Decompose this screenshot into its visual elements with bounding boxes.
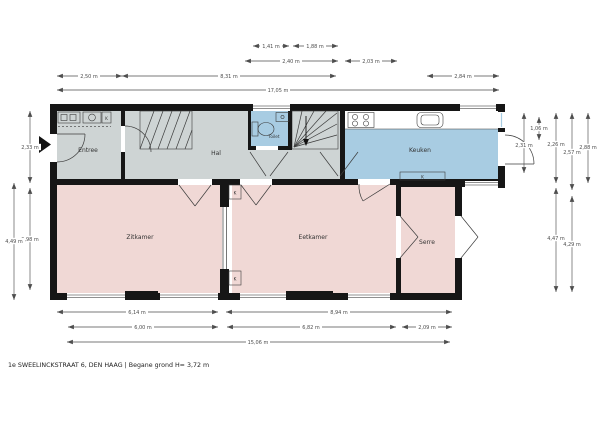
- entree-room: [57, 111, 121, 179]
- serre-label: Serre: [419, 239, 435, 246]
- dim-label: 1,06 m: [530, 126, 548, 132]
- keuken-eetkamer-opening: [358, 179, 390, 185]
- serre-right-door-leaf2: [461, 237, 478, 258]
- dim-label: 2,50 m: [80, 74, 98, 80]
- dim-label: 2,40 m: [282, 59, 300, 65]
- dim-label: 2,84 m: [454, 74, 472, 80]
- dim-label: 17,05 m: [268, 88, 289, 94]
- dim-label: 6,82 m: [302, 325, 320, 331]
- kitchen-cabinet-label: K: [421, 174, 424, 179]
- floorplan-drawing: K: [0, 0, 600, 424]
- toilet-window-opening: [253, 104, 290, 111]
- entree-label: Entree: [78, 147, 98, 154]
- hal-room: [125, 111, 340, 179]
- ensuite-cabinet-bottom-label: K: [234, 277, 237, 282]
- eetkamer-label: Eetkamer: [299, 234, 328, 241]
- serre-left-opening: [396, 216, 401, 258]
- dimensions-bottom: 6,14 m 8,94 m 6,00 m 6,82 m 2,09 m 15,06…: [57, 309, 452, 346]
- kitchen-exterior-door-arc-icon: [505, 135, 534, 164]
- serre-right-door-leaf1: [461, 216, 478, 237]
- keuken-label: Keuken: [409, 147, 431, 154]
- dim-label: 6,00 m: [134, 325, 152, 331]
- dim-label: 4,49 m: [5, 239, 23, 245]
- wall-bump-left: [125, 291, 158, 300]
- front-door-opening: [50, 134, 57, 162]
- dim-label: 15,06 m: [248, 340, 269, 346]
- wall-hal-keuken: [340, 111, 345, 179]
- partition-bottom-block: [220, 269, 229, 293]
- kitchen-counter: [345, 111, 498, 129]
- serre-right-opening: [455, 216, 462, 258]
- dimensions-right: 1,06 m 2,31 m 2,26 m 2,57 m 2,88 m 4,47 …: [513, 113, 599, 292]
- dim-label: 2,88 m: [579, 145, 597, 151]
- toilet-door-opening: [256, 146, 278, 150]
- entree-hal-opening: [121, 126, 125, 152]
- ensuite-cabinet-top-label: K: [234, 191, 237, 196]
- dim-label: 2,31 m: [515, 143, 533, 149]
- wall-left: [50, 104, 57, 300]
- dim-label: 2,03 m: [362, 59, 380, 65]
- hal-zitkamer-opening: [178, 179, 212, 185]
- bottom-window-4: [348, 293, 390, 300]
- toilet-wall-left: [248, 111, 251, 150]
- dimensions-left: 2,33 m 3,98 m 4,49 m: [3, 111, 41, 300]
- top-right-window-opening: [460, 104, 496, 111]
- kitchen-door-opening: [498, 132, 505, 166]
- dim-label: 8,94 m: [330, 310, 348, 316]
- floorplan-page: K: [0, 0, 600, 424]
- dim-label: 8,31 m: [220, 74, 238, 80]
- hal-label: Hal: [211, 150, 221, 157]
- bottom-window-1: [67, 293, 125, 300]
- bottom-window-3: [240, 293, 286, 300]
- dim-label: 1,41 m: [262, 44, 280, 50]
- keuken-room: [345, 129, 498, 179]
- zitkamer-label: Zitkamer: [126, 234, 154, 241]
- dim-label: 2,33 m: [21, 145, 39, 151]
- dim-label: 4,29 m: [563, 242, 581, 248]
- plan-caption: 1e SWEELINCKSTRAAT 6, DEN HAAG | Begane …: [8, 362, 209, 369]
- terrace-window-opening: [465, 181, 498, 187]
- dim-label: 6,14 m: [128, 310, 146, 316]
- entree-cabinet-label: K: [105, 116, 108, 121]
- partition-top-block: [220, 183, 229, 207]
- dim-label: 2,26 m: [547, 142, 565, 148]
- toilet-label: Toilet: [268, 134, 280, 139]
- dim-label: 2,09 m: [418, 325, 436, 331]
- dim-label: 1,88 m: [306, 44, 324, 50]
- wall-bump-right: [286, 291, 333, 300]
- dimensions-top: 1,41 m 1,88 m 2,40 m 2,03 m 2,50 m 8,31 …: [57, 43, 499, 94]
- bottom-window-2: [160, 293, 218, 300]
- hal-eetkamer-opening: [240, 179, 272, 185]
- toilet-wall-right: [288, 111, 292, 150]
